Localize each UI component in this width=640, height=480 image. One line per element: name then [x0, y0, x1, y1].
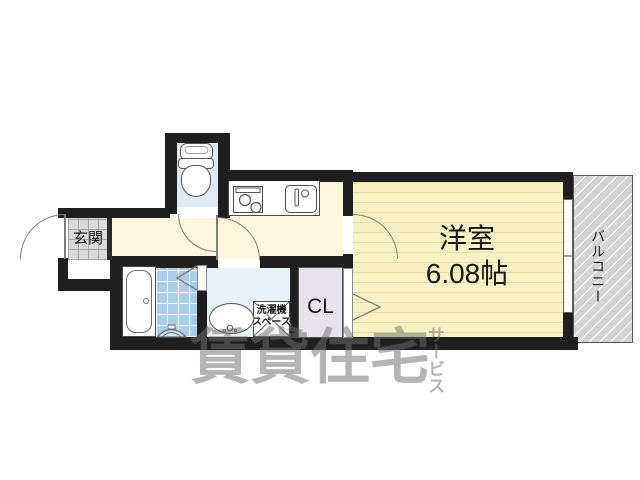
balcony-window — [563, 199, 573, 313]
entrance-door-arc — [20, 214, 65, 259]
stove-icon — [233, 186, 263, 213]
western-room-label: 洋室 6.08帖 — [377, 223, 557, 290]
wall — [343, 172, 353, 216]
washbasin-icon — [209, 303, 254, 334]
wall — [112, 337, 578, 350]
wall — [563, 172, 573, 200]
closet-door-panel — [343, 268, 353, 338]
entrance-label: 玄関 — [66, 230, 110, 247]
washer-space-label: 洗濯機 スペース — [250, 305, 293, 328]
closet-label: CL — [298, 295, 343, 319]
wall — [58, 208, 170, 218]
room-name: 洋室 — [377, 223, 557, 255]
room-size: 6.08帖 — [377, 258, 557, 290]
kitchen-sink-icon — [285, 185, 317, 213]
washer-space-line1: 洗濯機 — [250, 305, 293, 317]
bathroom-tile-floor — [156, 266, 197, 337]
shared-door-leaf — [216, 215, 218, 260]
bathtub-drain-icon — [143, 298, 149, 304]
wall — [343, 172, 573, 182]
wall — [197, 290, 207, 350]
floorplan: 玄関 洋室 6.08帖 CL バルコニー 洗濯機 スペース 賃貸住宅 サービス — [0, 0, 640, 480]
wall — [165, 133, 177, 214]
washer-space-line2: スペース — [250, 317, 293, 329]
toilet-bowl-icon — [181, 165, 211, 197]
wall — [110, 256, 122, 350]
balcony-label: バルコニー — [590, 221, 606, 311]
bathroom-door-panel — [197, 265, 207, 291]
